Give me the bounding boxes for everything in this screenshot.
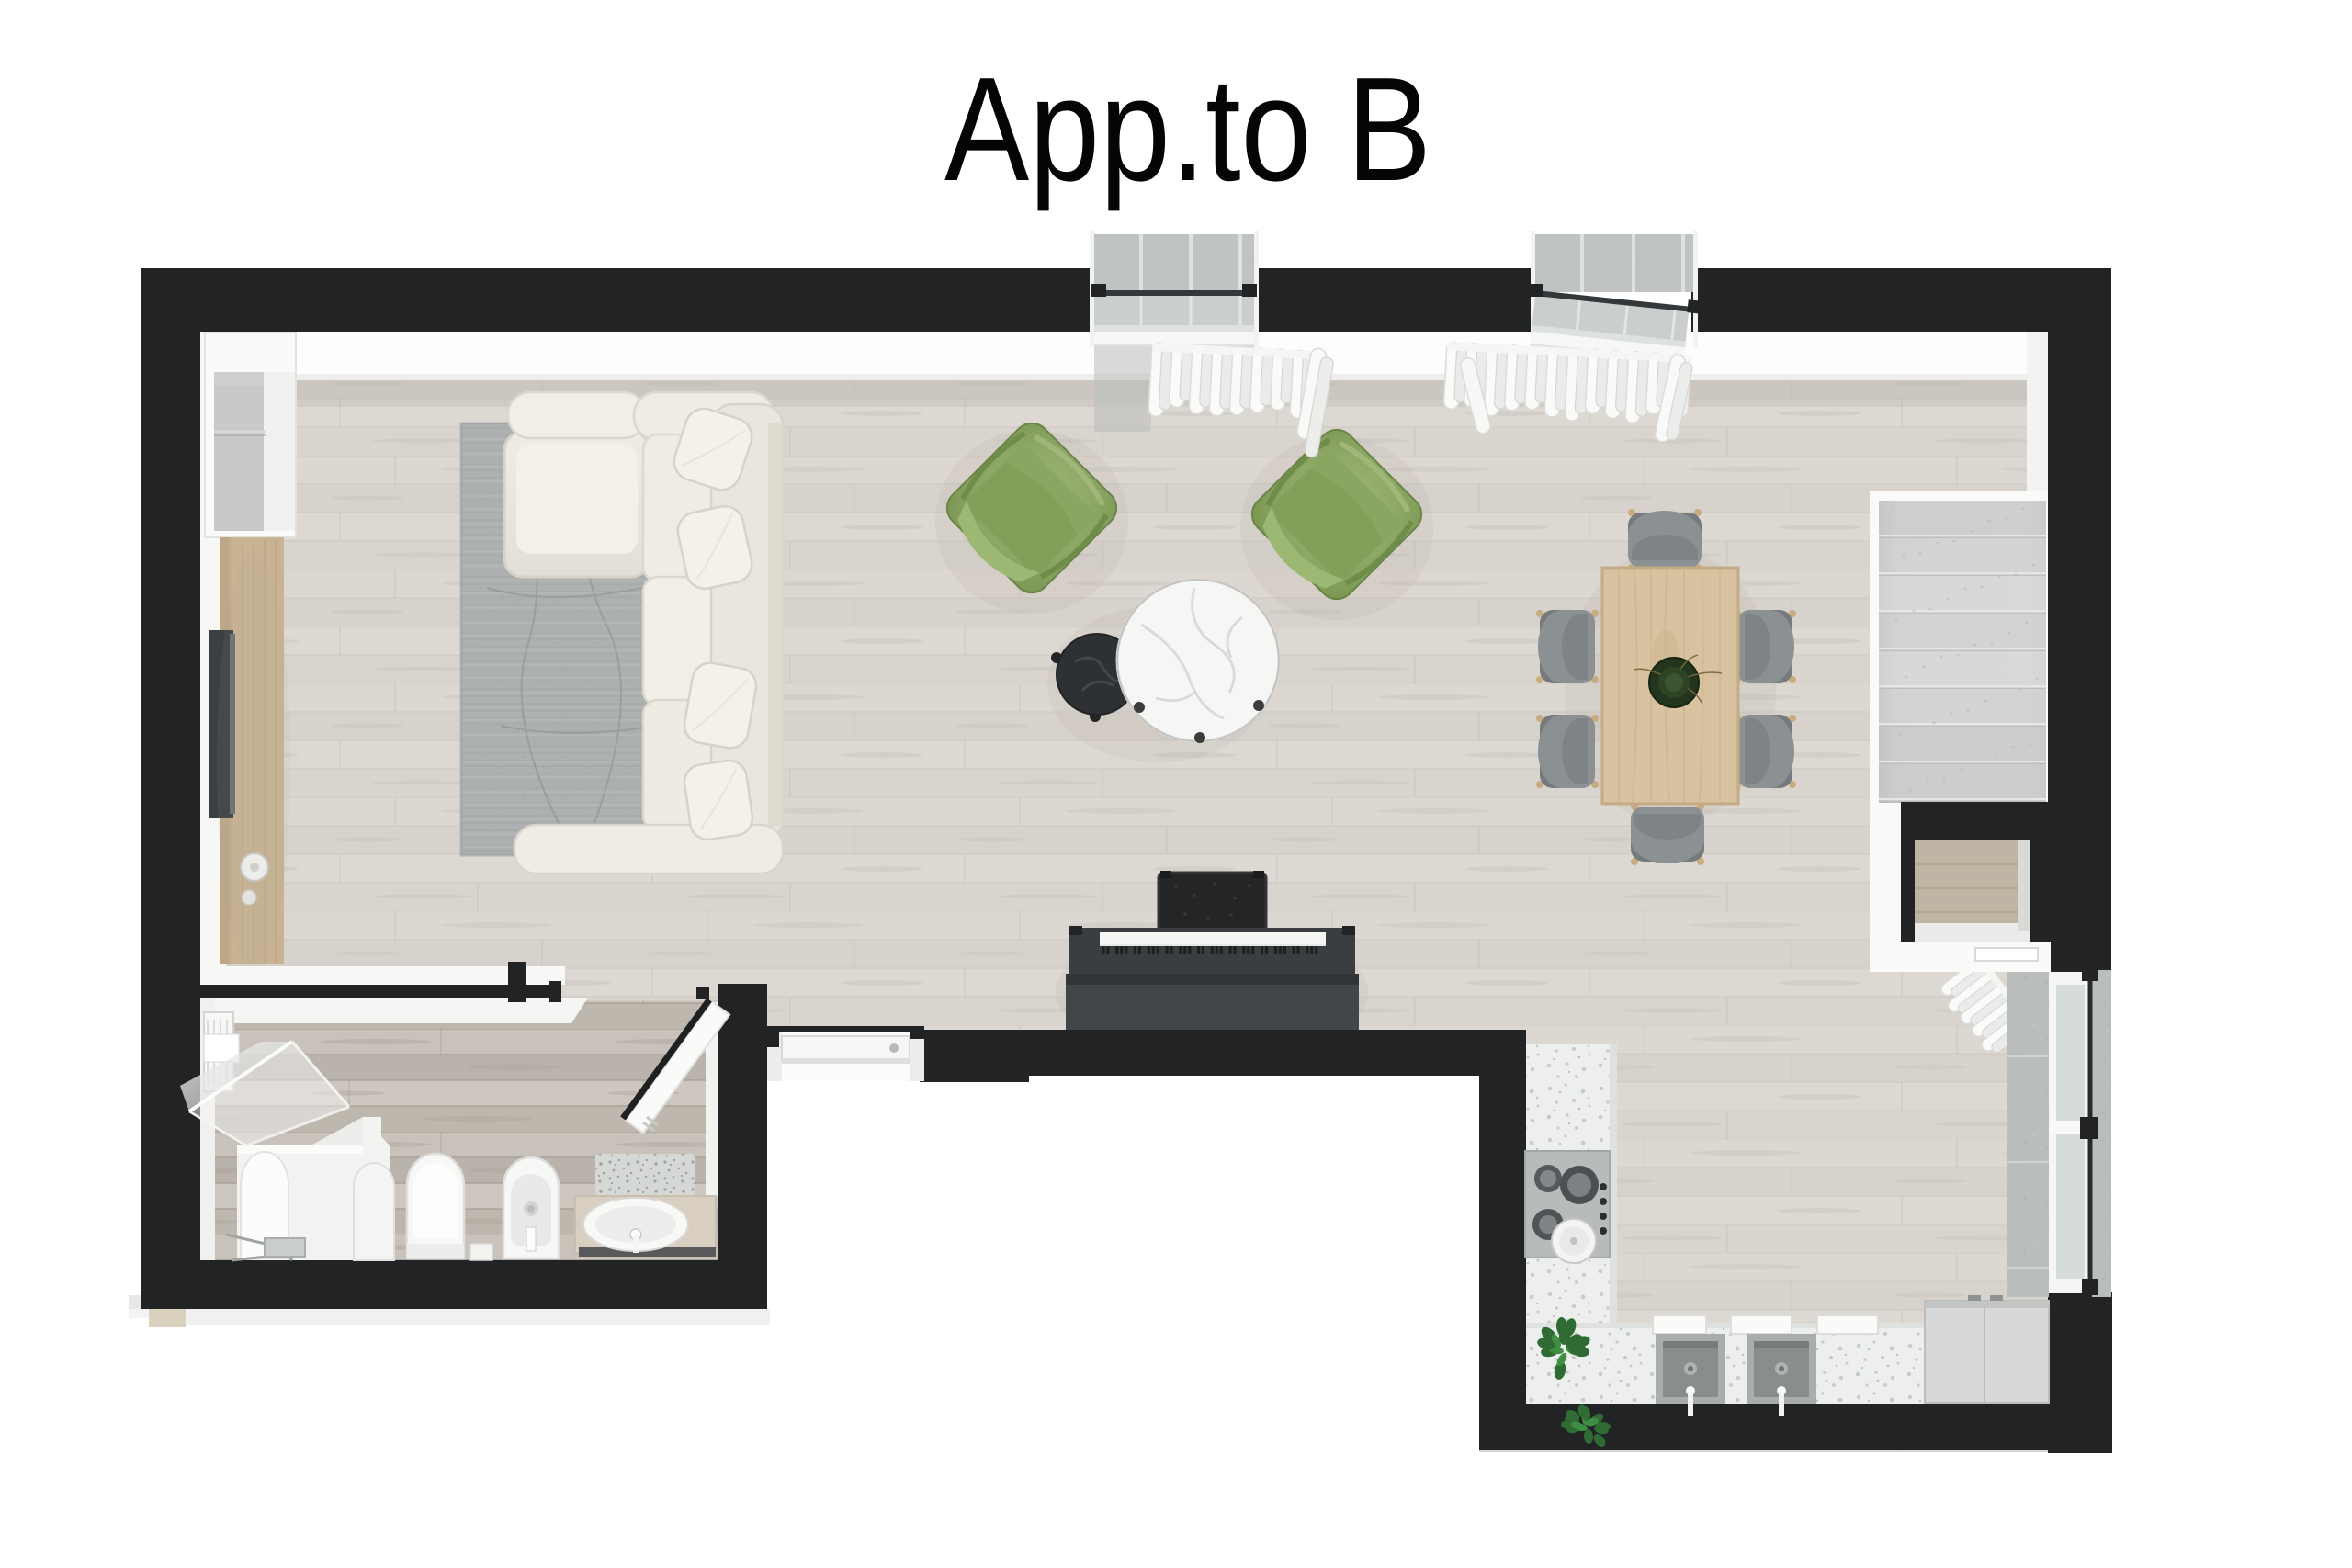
svg-text:App.to B: App.to B <box>944 46 1431 211</box>
